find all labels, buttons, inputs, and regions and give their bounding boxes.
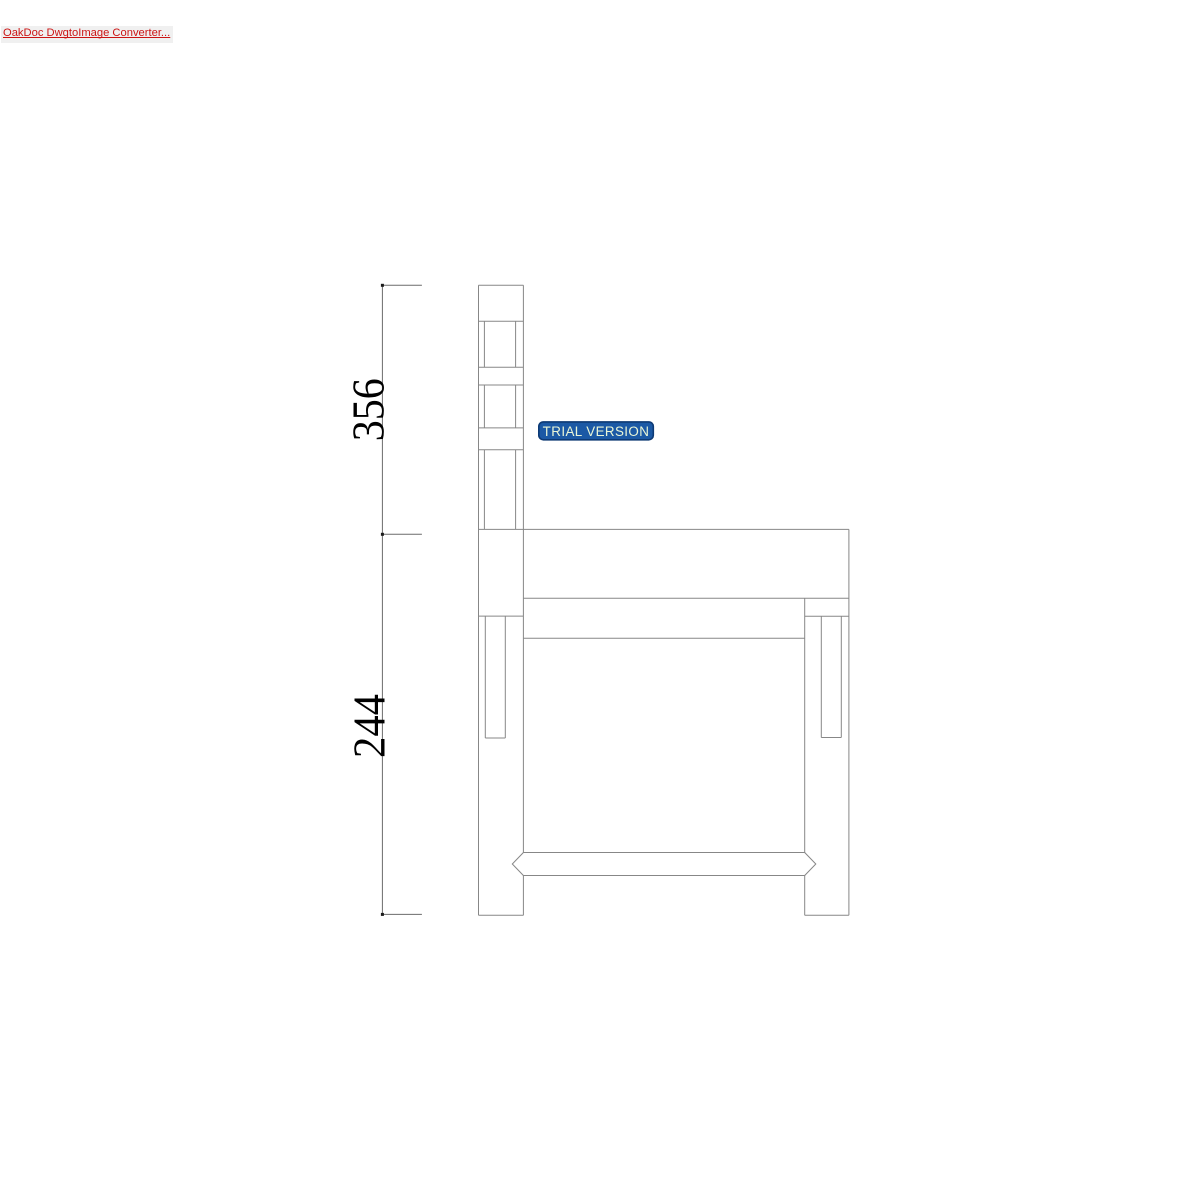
svg-text:TRIAL VERSION: TRIAL VERSION xyxy=(543,424,650,439)
svg-text:356: 356 xyxy=(343,378,394,441)
svg-text:244: 244 xyxy=(344,694,395,758)
